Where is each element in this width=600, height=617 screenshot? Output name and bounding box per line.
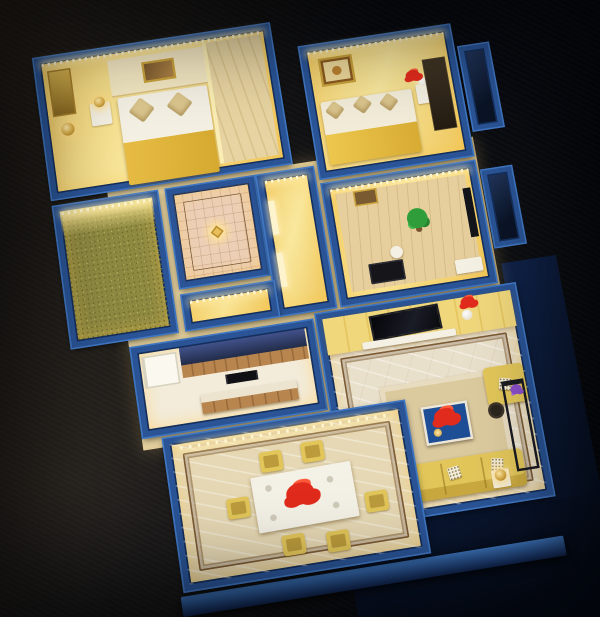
dining-chair	[325, 529, 351, 553]
white-ball-vase	[461, 309, 473, 321]
study-room	[322, 161, 496, 306]
dining-chair	[226, 496, 252, 520]
dark-wardrobe	[422, 57, 458, 132]
red-flower-centerpiece	[284, 481, 315, 507]
dining-chair	[364, 489, 390, 513]
bed-pillow	[353, 95, 373, 114]
bed-pillow	[129, 98, 155, 123]
red-flowers	[460, 296, 476, 309]
bedroom-2	[299, 25, 473, 179]
yellow-blanket	[326, 122, 423, 166]
bed-2	[320, 89, 422, 166]
door-frame	[276, 253, 288, 288]
dining-chair	[258, 450, 284, 474]
dining-chair	[281, 533, 307, 557]
led-strip	[307, 32, 444, 56]
island-counter	[200, 380, 299, 414]
bed-pillow	[166, 92, 192, 117]
apartment-model	[32, 0, 585, 617]
photo-backdrop	[0, 0, 600, 617]
black-cooktop	[225, 370, 258, 385]
coffee-table	[420, 401, 473, 447]
double-bed	[117, 85, 220, 185]
patterned-cushion	[447, 465, 462, 480]
place-setting	[265, 485, 273, 493]
red-flower-arrangement	[433, 407, 458, 427]
dining-chair	[300, 440, 326, 464]
balcony	[53, 192, 177, 349]
ceiling-medallion	[318, 54, 357, 87]
door-frame	[268, 201, 280, 236]
seat-divider	[480, 458, 487, 489]
medallion-center	[331, 66, 342, 76]
gold-dish	[433, 428, 442, 437]
bed-pillow	[325, 101, 345, 120]
bed-pillow	[379, 93, 399, 112]
framed-picture	[141, 58, 176, 84]
floor-lamp-gold	[60, 122, 75, 137]
mirror-wardrobe	[47, 68, 76, 117]
kitchen-window	[141, 352, 181, 389]
bathroom	[166, 177, 269, 289]
led-strip	[265, 175, 308, 184]
